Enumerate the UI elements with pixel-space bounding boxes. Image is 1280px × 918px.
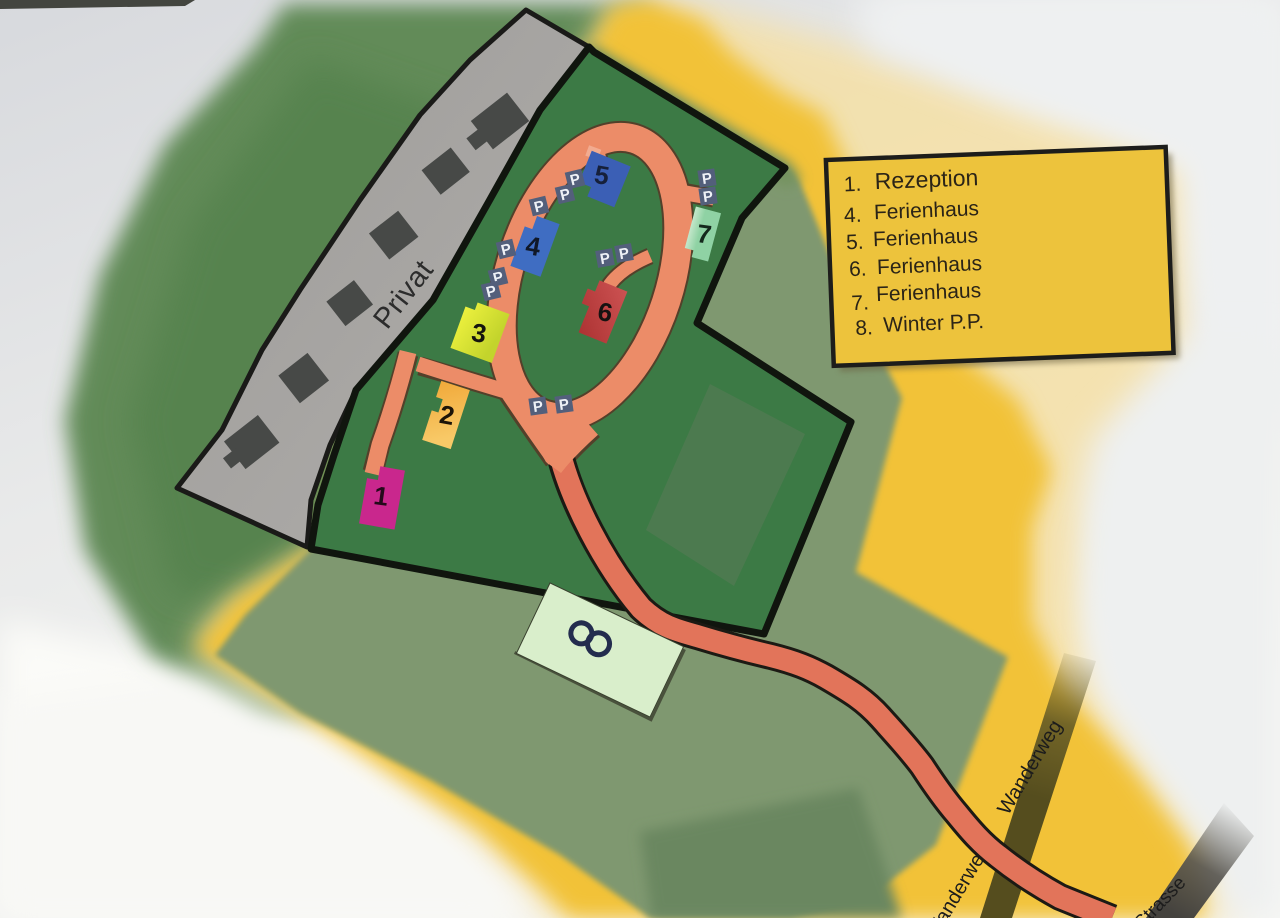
svg-text:Ferienhaus: Ferienhaus [876, 279, 982, 306]
svg-text:Ferienhaus: Ferienhaus [877, 252, 983, 279]
svg-text:7.: 7. [851, 291, 869, 315]
svg-text:Ferienhaus: Ferienhaus [874, 197, 980, 224]
svg-text:1.: 1. [843, 173, 861, 197]
svg-text:Ferienhaus: Ferienhaus [873, 224, 979, 251]
svg-text:6.: 6. [849, 258, 867, 282]
svg-text:Winter P.P.: Winter P.P. [883, 310, 985, 337]
svg-text:Rezeption: Rezeption [874, 164, 978, 194]
svg-text:5.: 5. [846, 231, 864, 255]
svg-text:4.: 4. [844, 204, 862, 228]
svg-text:8.: 8. [855, 316, 873, 340]
